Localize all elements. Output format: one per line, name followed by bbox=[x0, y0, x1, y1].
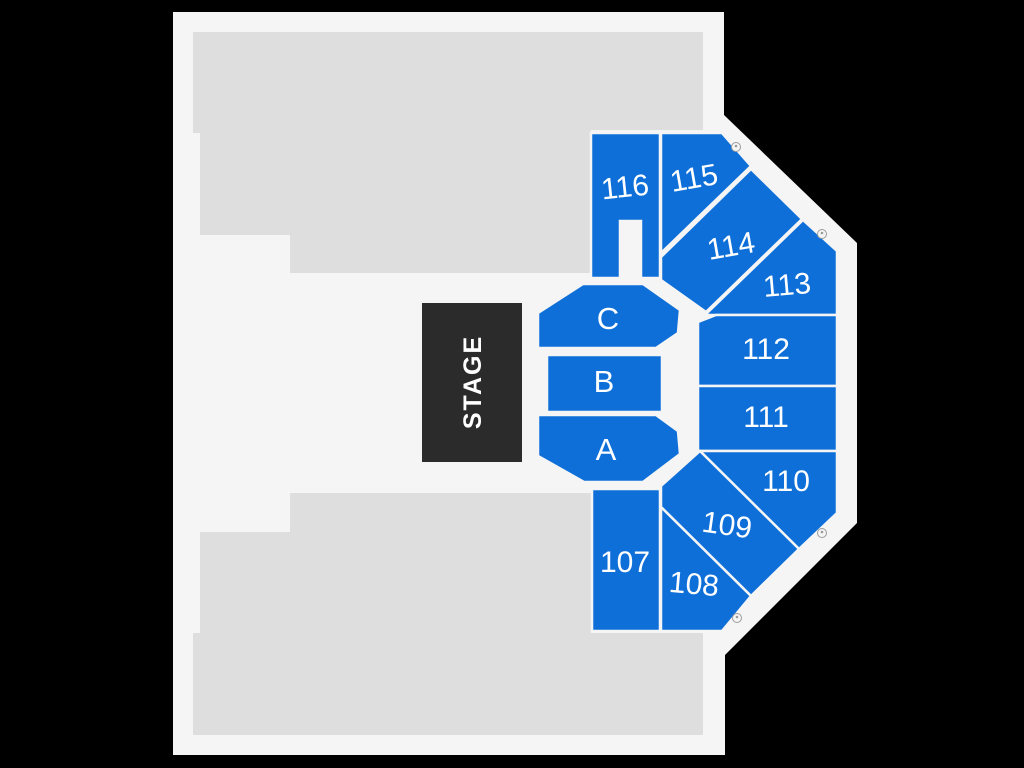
section-107[interactable] bbox=[592, 489, 660, 631]
wheelchair-icon-upper-right bbox=[818, 230, 827, 239]
section-111[interactable] bbox=[698, 386, 837, 451]
seating-map-canvas: STAGE 116 115 114 113 112 111 110 109 10… bbox=[0, 0, 1024, 768]
section-b[interactable] bbox=[547, 355, 662, 412]
wheelchair-icon-bottom bbox=[733, 614, 742, 623]
stage-block bbox=[422, 303, 522, 462]
wheelchair-icon-top bbox=[732, 143, 741, 152]
section-112[interactable] bbox=[698, 315, 837, 386]
wheelchair-icon-lower-right bbox=[818, 529, 827, 538]
